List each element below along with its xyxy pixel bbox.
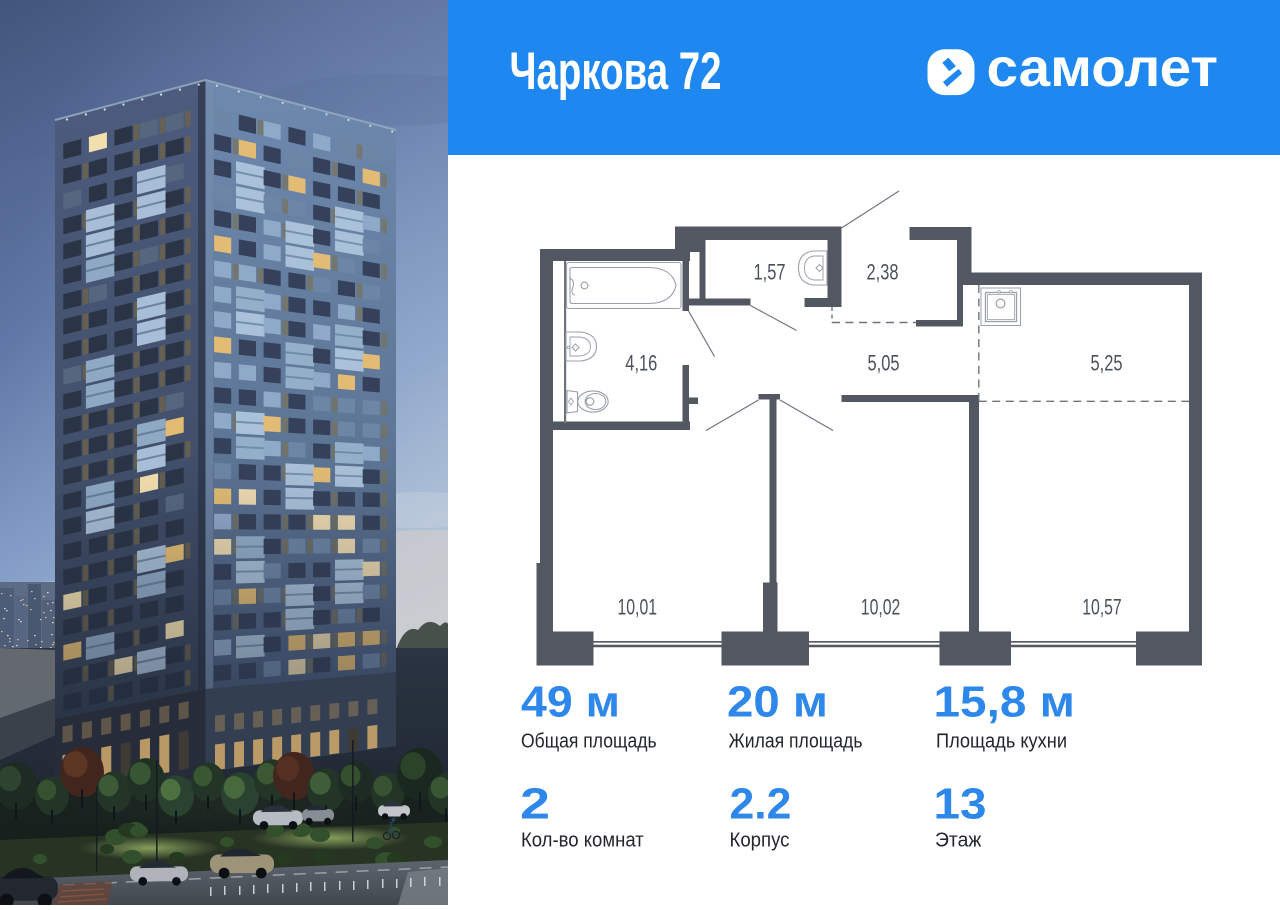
svg-text:10,57: 10,57 — [1082, 595, 1122, 620]
svg-text:Жилая площадь: Жилая площадь — [729, 730, 863, 752]
svg-text:Площадь кухни: Площадь кухни — [936, 730, 1067, 752]
svg-text:20 м: 20 м — [727, 678, 828, 726]
svg-text:5,25: 5,25 — [1091, 351, 1123, 376]
svg-text:Этаж: Этаж — [935, 830, 982, 852]
svg-text:49 м: 49 м — [521, 678, 620, 726]
svg-text:4,16: 4,16 — [625, 351, 657, 376]
svg-text:10,01: 10,01 — [618, 595, 658, 620]
svg-text:10,02: 10,02 — [861, 595, 901, 620]
svg-text:самолет: самолет — [987, 38, 1219, 98]
svg-text:Чаркова 72: Чаркова 72 — [510, 42, 722, 101]
svg-text:13: 13 — [934, 780, 987, 828]
svg-text:Общая площадь: Общая площадь — [521, 730, 657, 752]
svg-text:2.2: 2.2 — [730, 780, 792, 828]
svg-text:Корпус: Корпус — [730, 830, 790, 852]
svg-text:Кол-во комнат: Кол-во комнат — [521, 830, 644, 852]
svg-text:1,57: 1,57 — [754, 260, 786, 285]
svg-text:2,38: 2,38 — [867, 260, 899, 285]
svg-text:2: 2 — [520, 780, 550, 828]
svg-text:5,05: 5,05 — [868, 351, 900, 376]
svg-text:15,8 м: 15,8 м — [934, 678, 1076, 726]
